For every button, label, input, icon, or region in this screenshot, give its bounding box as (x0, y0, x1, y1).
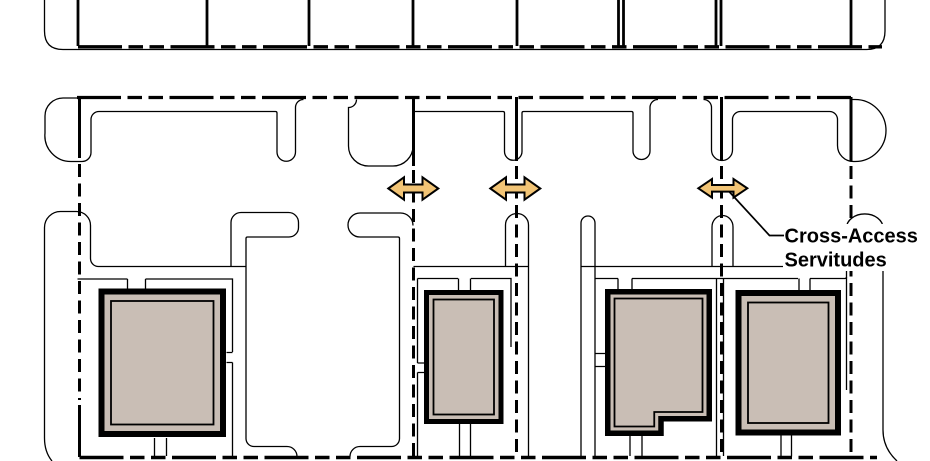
svg-text:Servitudes: Servitudes (785, 250, 887, 272)
svg-text:Cross-Access: Cross-Access (785, 226, 918, 248)
